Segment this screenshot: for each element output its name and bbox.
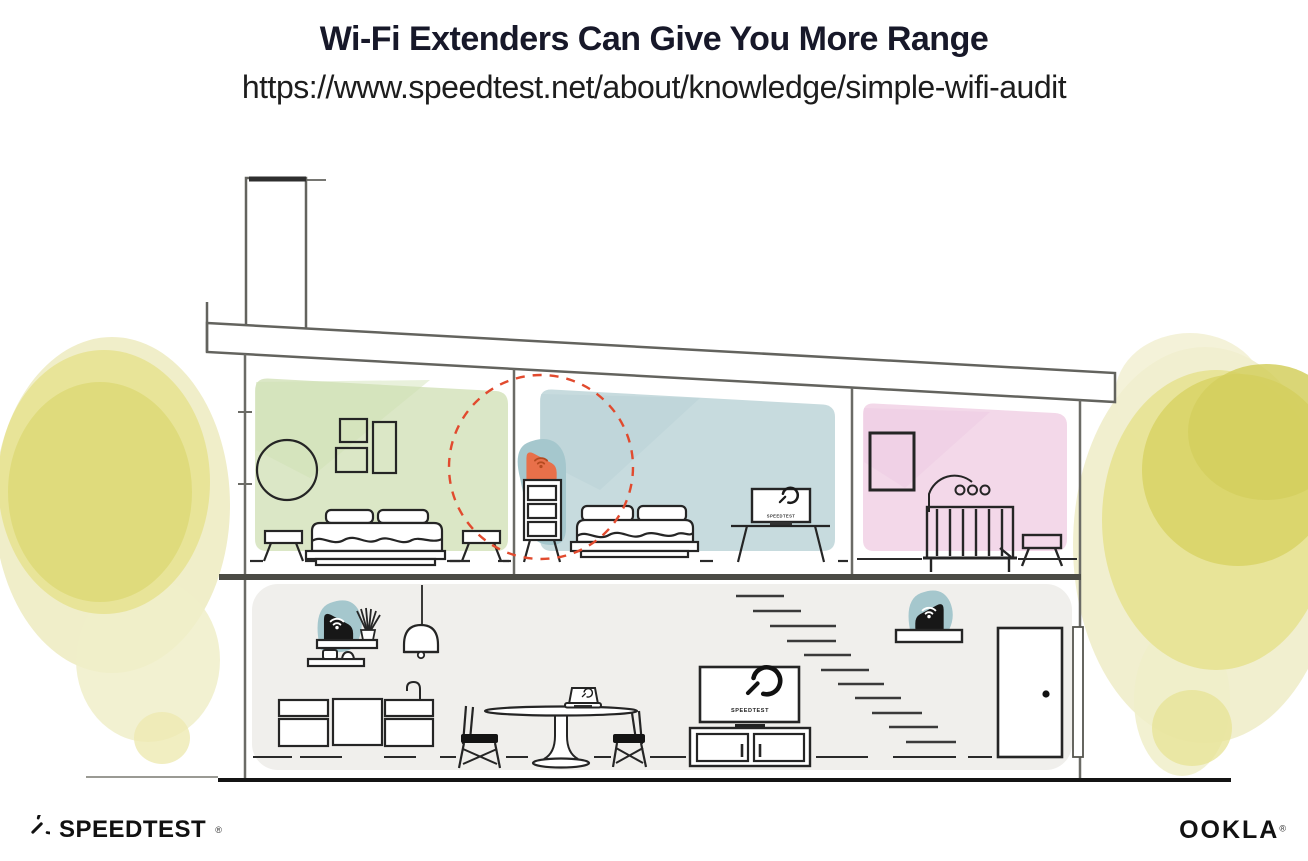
bowl — [342, 652, 354, 659]
door-knob — [1042, 690, 1049, 697]
tree-left — [0, 337, 230, 764]
wall-shelf — [308, 659, 364, 666]
ookla-wordmark: OOKLA — [1179, 816, 1279, 844]
source-url-text: https://www.speedtest.net/about/knowledg… — [0, 69, 1308, 106]
tv-screen-label: SPEEDTEST — [767, 514, 796, 519]
page-title: Wi-Fi Extenders Can Give You More Range — [0, 20, 1308, 59]
door — [998, 628, 1062, 757]
wall-shelf — [317, 640, 377, 648]
chimney — [246, 177, 326, 331]
wall-shelf — [896, 630, 962, 642]
ground-line — [86, 777, 1231, 780]
ookla-logo: OOKLA® — [1179, 816, 1286, 845]
table-base — [533, 759, 589, 768]
speedtest-wordmark: SPEEDTEST — [59, 816, 206, 844]
downpipe — [1073, 627, 1083, 757]
cup — [323, 650, 337, 659]
page: Wi-Fi Extenders Can Give You More Range … — [0, 0, 1308, 861]
header: Wi-Fi Extenders Can Give You More Range … — [0, 20, 1308, 106]
tv-living: SPEEDTEST — [700, 667, 799, 728]
speedtest-trademark: ® — [215, 825, 222, 835]
table-top — [485, 707, 637, 716]
ookla-trademark: ® — [1279, 824, 1286, 834]
speedtest-gauge-icon — [20, 815, 50, 845]
media-console — [690, 728, 810, 766]
house-cross-section-illustration: SPEEDTEST — [0, 0, 1308, 861]
speedtest-logo: SPEEDTEST® — [20, 815, 222, 845]
tv-screen-label: SPEEDTEST — [731, 708, 769, 714]
